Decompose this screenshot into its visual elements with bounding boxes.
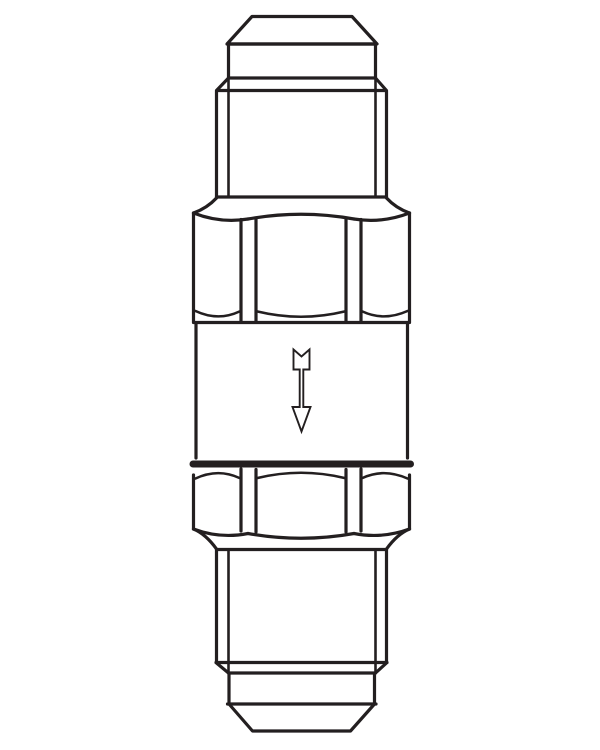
hex1-top-edge-middle-face xyxy=(248,214,354,219)
hex1-shoulder-right xyxy=(387,198,410,213)
lower-hex-nut xyxy=(194,469,410,549)
hex1-bottom-chamfer-right xyxy=(363,311,408,316)
figure-canvas xyxy=(0,0,600,750)
bottom-cap-chamfer xyxy=(229,704,375,731)
top-threaded-connector xyxy=(217,78,387,197)
hex1-bottom-chamfer-left xyxy=(196,311,240,316)
upper-hex-nut xyxy=(194,198,410,323)
hex2-top-chamfer-right xyxy=(363,473,408,478)
hex2-top-chamfer-middle xyxy=(258,473,345,478)
hex2-top-chamfer-left xyxy=(196,473,240,478)
flow-direction-down-arrow-icon xyxy=(293,350,311,432)
drawing-strokes xyxy=(193,17,411,732)
bottom-cap-band xyxy=(228,673,377,704)
check-valve-drawing xyxy=(0,0,600,750)
top-cap-band xyxy=(229,44,376,78)
hex1-bottom-chamfer-middle xyxy=(258,312,345,317)
thread-top-shoulder-right xyxy=(376,78,387,197)
bottom-cap xyxy=(228,673,377,731)
thread-bottom-chamfer-right xyxy=(376,663,387,673)
valve-body xyxy=(193,323,411,464)
top-cap xyxy=(227,17,377,79)
thread-top-shoulder-left xyxy=(217,78,229,197)
hex1-shoulder-left xyxy=(194,198,217,213)
top-cap-chamfer xyxy=(227,17,377,45)
thread-bottom-chamfer-left xyxy=(217,663,229,673)
bottom-threaded-connector xyxy=(216,550,387,674)
hex2-bottom-edge-middle-face xyxy=(248,534,354,539)
